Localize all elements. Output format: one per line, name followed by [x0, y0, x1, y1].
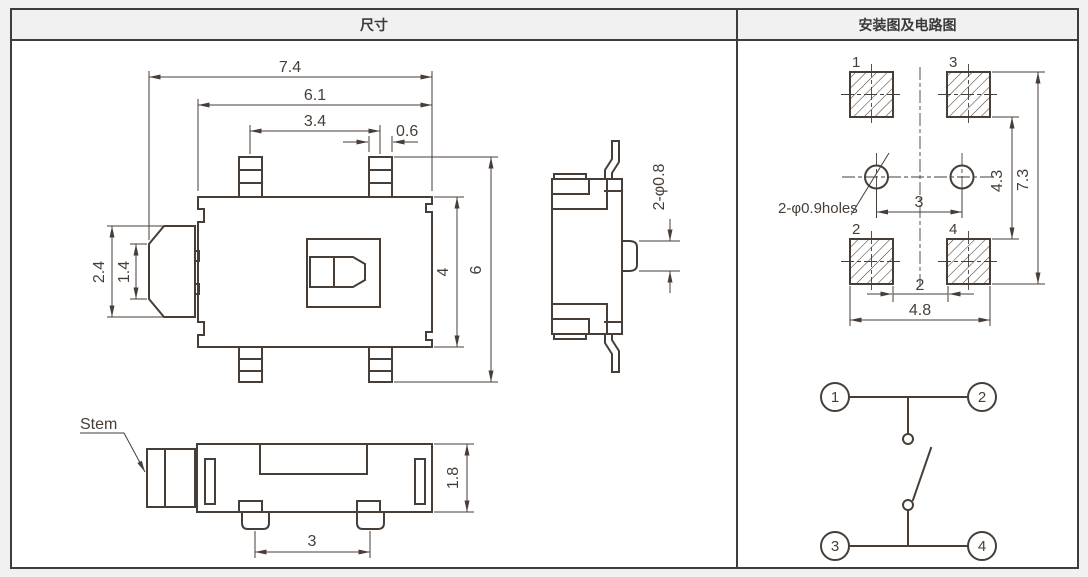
dim-label-terminal-width: 0.6 — [396, 123, 418, 140]
holes-note-label: 2-φ0.9holes — [778, 200, 858, 217]
dim-label-overall-width: 7.4 — [279, 59, 301, 76]
dim-label-thickness: 1.8 — [445, 467, 462, 489]
pad-2-label: 2 — [852, 221, 860, 238]
mounting-diagram: 1 3 2 4 2-φ0.9holes 3 — [778, 54, 1045, 326]
dimensions-panel: 7.4 6.1 3.4 — [12, 41, 738, 567]
contact-lower — [903, 500, 913, 510]
dim-label-terminal-pitch: 3.4 — [304, 113, 326, 130]
contact-upper — [903, 434, 913, 444]
dim-label-pad-gap-h: 2 — [916, 277, 925, 294]
dim-label-bump-dia: 2-φ0.8 — [651, 163, 668, 210]
drawing-sheet: 尺寸 安装图及电路图 — [10, 8, 1079, 569]
header-mounting-circuit: 安装图及电路图 — [738, 10, 1077, 39]
dim-label-pad-span-outer-v: 7.3 — [1015, 169, 1032, 191]
dimensions-drawing: 7.4 6.1 3.4 — [12, 41, 736, 567]
terminal-3-label: 3 — [831, 538, 839, 555]
pad-1 — [850, 72, 893, 117]
circuit-diagram: 1 2 3 4 — [821, 383, 996, 560]
table-header: 尺寸 安装图及电路图 — [12, 10, 1077, 41]
bottom-view: Stem 1.8 3 — [80, 416, 474, 558]
dim-label-hole-pitch: 3 — [915, 194, 924, 211]
stem-label: Stem — [80, 416, 117, 433]
dim-label-pad-span-inner-v: 4.3 — [989, 170, 1006, 192]
pad-4-label: 4 — [949, 221, 957, 238]
dim-label-pad-span-outer-h: 4.8 — [909, 302, 931, 319]
pad-1-label: 1 — [852, 54, 860, 71]
pad-3 — [947, 72, 990, 117]
switch-arm — [913, 448, 931, 500]
pad-4 — [947, 239, 990, 284]
mounting-circuit-drawing: 1 3 2 4 2-φ0.9holes 3 — [738, 41, 1077, 567]
datasheet-page: 尺寸 安装图及电路图 — [0, 0, 1088, 577]
mounting-circuit-panel: 1 3 2 4 2-φ0.9holes 3 — [738, 41, 1077, 567]
dim-label-foot-pitch: 3 — [308, 533, 317, 550]
header-dimensions: 尺寸 — [12, 10, 738, 39]
front-view: 7.4 6.1 3.4 — [91, 59, 498, 382]
dim-label-body-width: 6.1 — [304, 87, 326, 104]
dim-label-body-height: 4 — [435, 267, 452, 276]
dim-label-stem-tip: 1.4 — [116, 261, 133, 283]
pad-3-label: 3 — [949, 54, 957, 71]
dim-label-overall-height: 6 — [468, 265, 485, 274]
drawing-content: 7.4 6.1 3.4 — [12, 41, 1077, 567]
dim-label-stem-width: 2.4 — [91, 261, 108, 283]
terminal-1-label: 1 — [831, 389, 839, 406]
terminal-4-label: 4 — [978, 538, 986, 555]
terminal-2-label: 2 — [978, 389, 986, 406]
pad-2 — [850, 239, 893, 284]
side-view: 2-φ0.8 — [552, 141, 680, 372]
